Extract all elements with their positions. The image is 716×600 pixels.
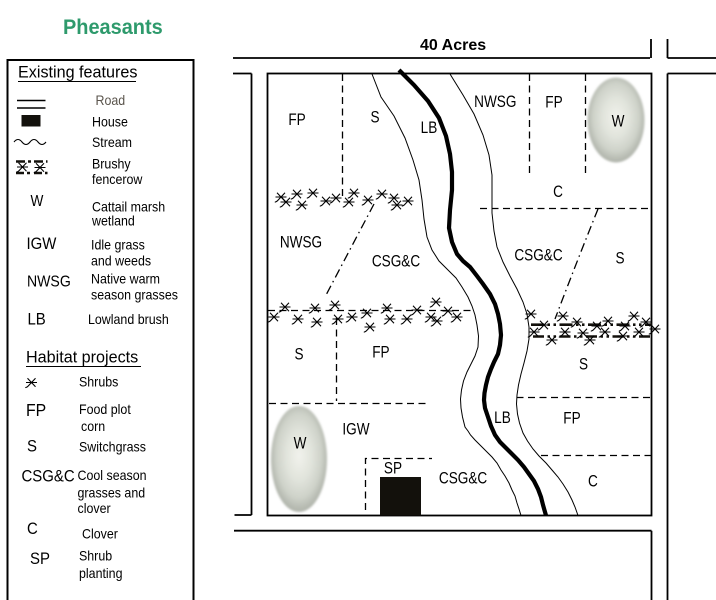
- svg-text:W: W: [612, 112, 625, 131]
- svg-text:NWSG: NWSG: [27, 273, 71, 291]
- svg-text:planting: planting: [79, 566, 123, 582]
- svg-text:season grasses: season grasses: [91, 287, 178, 303]
- svg-text:FP: FP: [545, 93, 562, 112]
- svg-text:Idle grass: Idle grass: [91, 237, 145, 253]
- svg-text:Food plot: Food plot: [79, 402, 131, 418]
- svg-text:S: S: [295, 345, 304, 364]
- svg-text:Switchgrass: Switchgrass: [79, 439, 146, 455]
- svg-text:Cool season: Cool season: [78, 468, 147, 484]
- svg-text:Stream: Stream: [92, 135, 132, 151]
- svg-text:and weeds: and weeds: [91, 253, 152, 269]
- svg-text:C: C: [27, 520, 38, 538]
- svg-text:Shrubs: Shrubs: [79, 374, 119, 390]
- svg-text:IGW: IGW: [26, 235, 57, 253]
- svg-text:Habitat projects: Habitat projects: [26, 347, 138, 366]
- svg-text:fencerow: fencerow: [92, 172, 143, 188]
- svg-text:Shrub: Shrub: [79, 548, 112, 564]
- svg-text:W: W: [31, 193, 44, 210]
- svg-text:Pheasants: Pheasants: [63, 16, 163, 40]
- svg-text:FP: FP: [372, 343, 389, 362]
- svg-text:Road: Road: [95, 93, 125, 109]
- svg-text:grasses and: grasses and: [78, 485, 146, 501]
- svg-text:C: C: [588, 472, 598, 491]
- svg-text:FP: FP: [26, 400, 46, 420]
- svg-text:40 Acres: 40 Acres: [420, 37, 486, 54]
- svg-text:NWSG: NWSG: [474, 93, 516, 112]
- svg-text:FP: FP: [563, 409, 580, 428]
- svg-text:clover: clover: [78, 501, 112, 517]
- svg-text:wetland: wetland: [91, 213, 135, 229]
- svg-text:LB: LB: [421, 119, 438, 138]
- svg-text:C: C: [553, 183, 563, 202]
- svg-text:SP: SP: [384, 459, 402, 478]
- svg-text:S: S: [27, 438, 37, 456]
- svg-text:S: S: [371, 108, 380, 127]
- svg-text:W: W: [294, 434, 307, 453]
- svg-text:CSG&C: CSG&C: [439, 469, 487, 488]
- svg-text:Existing features: Existing features: [18, 62, 137, 81]
- svg-text:CSG&C: CSG&C: [21, 468, 74, 486]
- svg-text:House: House: [92, 114, 128, 130]
- svg-text:S: S: [615, 249, 624, 268]
- svg-text:Native warm: Native warm: [91, 271, 160, 287]
- svg-text:NWSG: NWSG: [280, 233, 322, 252]
- svg-text:CSG&C: CSG&C: [514, 246, 562, 265]
- svg-text:SP: SP: [30, 550, 50, 568]
- svg-text:FP: FP: [288, 111, 305, 130]
- svg-text:LB: LB: [494, 409, 511, 428]
- svg-text:IGW: IGW: [342, 420, 370, 439]
- svg-text:Lowland brush: Lowland brush: [88, 312, 169, 328]
- svg-text:S: S: [579, 355, 588, 374]
- svg-text:Clover: Clover: [82, 526, 119, 542]
- svg-text:corn: corn: [81, 419, 105, 435]
- svg-text:CSG&C: CSG&C: [372, 252, 420, 271]
- svg-text:LB: LB: [28, 311, 46, 329]
- svg-text:Brushy: Brushy: [92, 156, 131, 172]
